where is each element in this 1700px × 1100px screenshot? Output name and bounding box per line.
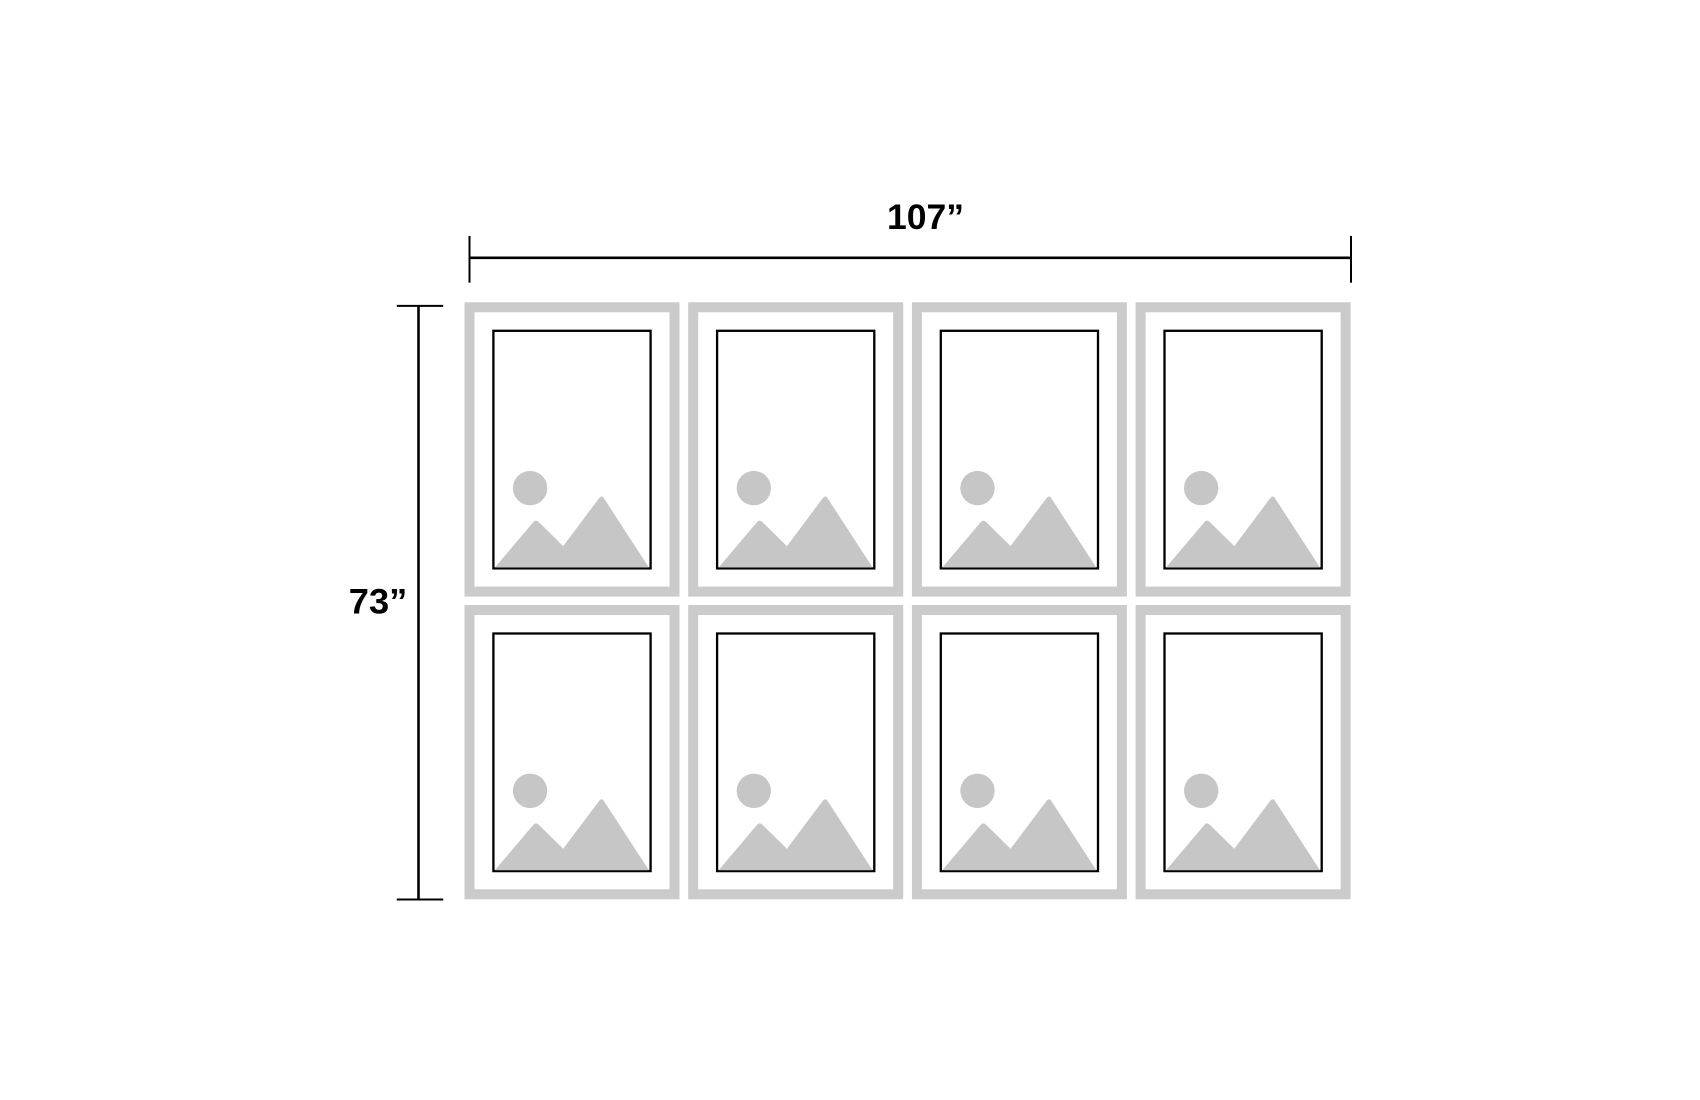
svg-text:73”: 73” — [349, 582, 408, 621]
svg-text:107”: 107” — [887, 198, 964, 237]
